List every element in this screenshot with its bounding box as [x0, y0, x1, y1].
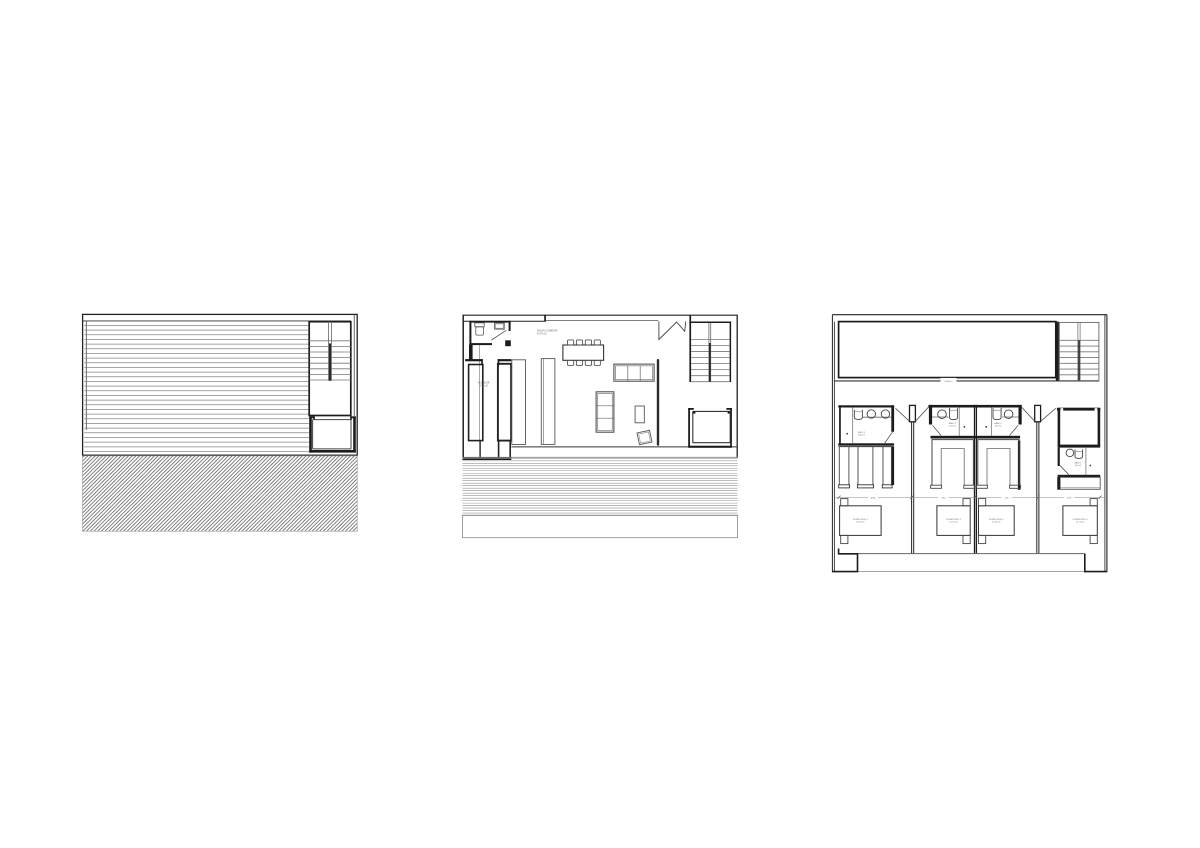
svg-text:DORMITORIO 4: DORMITORIO 4	[1073, 519, 1089, 521]
svg-text:9.20 m2: 9.20 m2	[479, 385, 488, 387]
svg-text:4.80 m2: 4.80 m2	[858, 435, 865, 437]
svg-text:43.70 m2: 43.70 m2	[537, 334, 547, 336]
svg-text:DORMITORIO 2: DORMITORIO 2	[946, 519, 962, 521]
svg-text:DORMITORIO 3: DORMITORIO 3	[989, 519, 1005, 521]
svg-text:12.10 m2: 12.10 m2	[949, 522, 958, 524]
svg-text:3.60 m2: 3.60 m2	[1075, 465, 1082, 467]
svg-text:SALON COMEDOR: SALON COMEDOR	[537, 330, 558, 333]
svg-text:12.70 m2: 12.70 m2	[1076, 522, 1085, 524]
svg-text:4.90 m2: 4.90 m2	[995, 426, 1002, 428]
svg-text:DORMITORIO 1: DORMITORIO 1	[853, 519, 869, 521]
svg-text:4.90 m2: 4.90 m2	[949, 426, 956, 428]
svg-text:12.10 m2: 12.10 m2	[992, 522, 1001, 524]
svg-text:13.70 m2: 13.70 m2	[856, 522, 865, 524]
svg-text:24.60 m: 24.60 m	[945, 381, 953, 383]
svg-text:BANO 3: BANO 3	[995, 422, 1002, 425]
svg-text:VESTIDOR: VESTIDOR	[478, 382, 490, 384]
svg-text:BANO 2: BANO 2	[949, 422, 956, 425]
